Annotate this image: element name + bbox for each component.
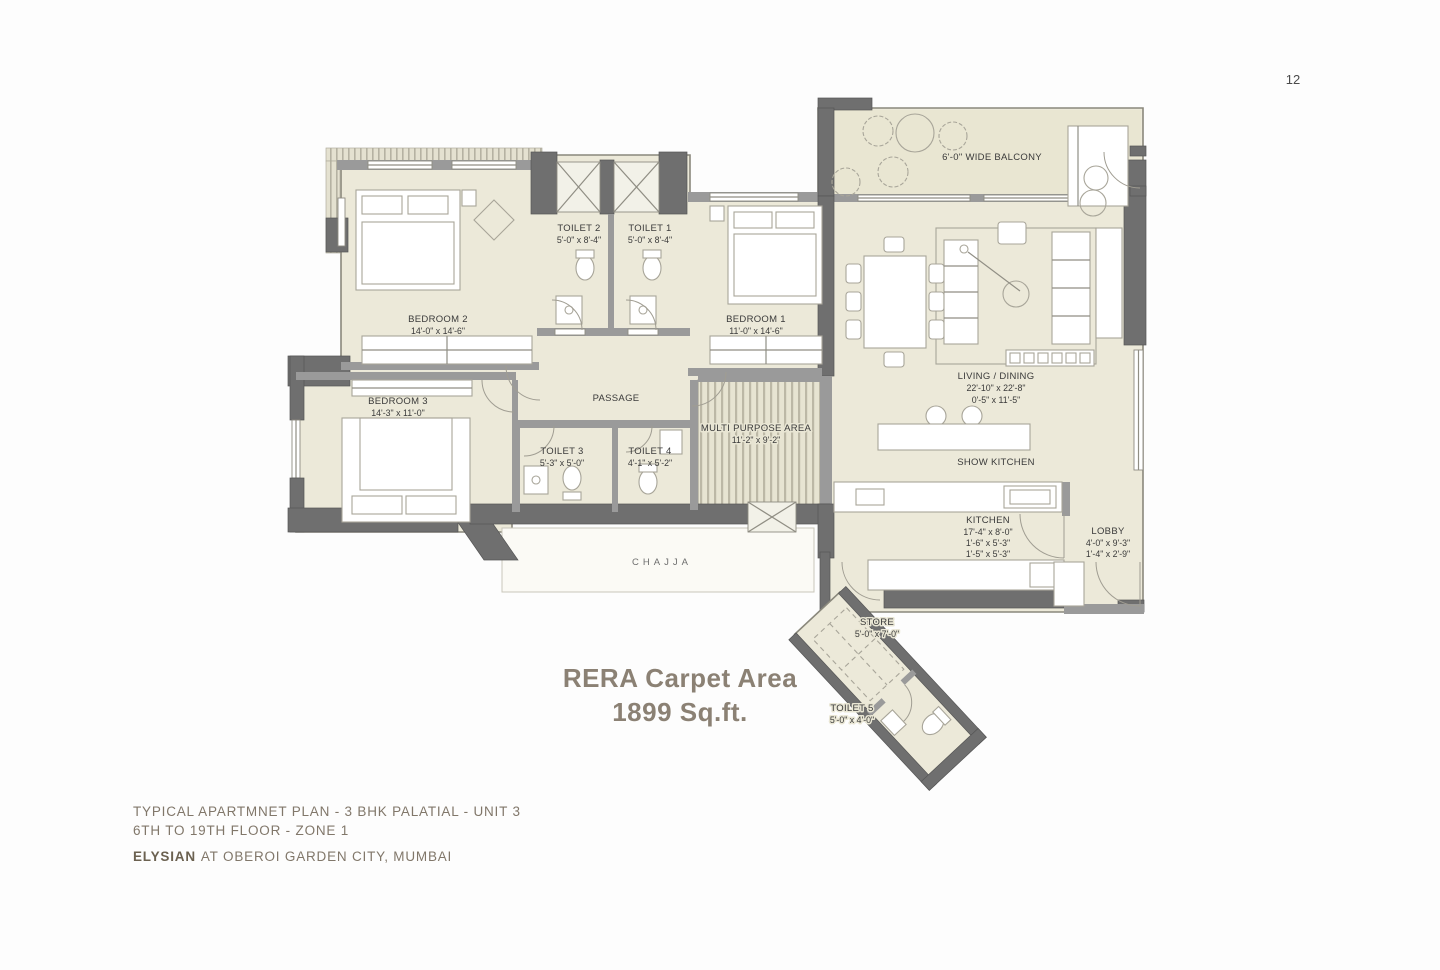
bedroom1-dim: 11'-0" x 14'-6" [729, 326, 782, 336]
show-kitchen-label: SHOW KITCHEN [957, 457, 1035, 468]
kitchen-dim3: 1'-5" x 5'-3" [966, 549, 1010, 559]
floor-plan-drawing: 6'-0" WIDE BALCONY TOILET 2 5'-0" x 8'-4… [0, 0, 1440, 970]
store-dim: 5'-0" x 7'-0" [855, 629, 899, 639]
toilet2-label: TOILET 2 [557, 223, 600, 234]
project-location: AT OBEROI GARDEN CITY, MUMBAI [201, 849, 452, 864]
bedroom3-dim: 14'-3" x 11'-0" [371, 408, 424, 418]
project-brand: ELYSIAN [133, 849, 196, 864]
plan-title-line2: 6TH TO 19TH FLOOR - ZONE 1 [133, 823, 349, 838]
carpet-area-line2: 1899 Sq.ft. [612, 697, 748, 727]
lobby-label: LOBBY [1091, 526, 1125, 537]
title-block: TYPICAL APARTMNET PLAN - 3 BHK PALATIAL … [133, 804, 521, 864]
multi-purpose-dim: 11'-2" x 9'-2" [732, 435, 781, 445]
floor-plan-page: 6'-0" WIDE BALCONY TOILET 2 5'-0" x 8'-4… [0, 0, 1440, 970]
toilet1-label: TOILET 1 [628, 223, 671, 234]
toilet5-dim: 5'-0" x 4'-0" [830, 715, 874, 725]
kitchen-dim2: 1'-6" x 5'-3" [966, 538, 1010, 548]
living-dining-dim2: 0'-5" x 11'-5" [972, 395, 1021, 405]
project-name-line: ELYSIANAT OBEROI GARDEN CITY, MUMBAI [133, 849, 452, 864]
toilet1-dim: 5'-0" x 8'-4" [628, 235, 672, 245]
kitchen-dim1: 17'-4" x 8'-0" [963, 527, 1012, 537]
passage-label: PASSAGE [593, 393, 640, 404]
living-dining-label: LIVING / DINING [958, 371, 1035, 382]
page-number: 12 [1286, 72, 1300, 87]
toilet4-label: TOILET 4 [628, 446, 671, 457]
plan-title-line1: TYPICAL APARTMNET PLAN - 3 BHK PALATIAL … [133, 804, 521, 819]
toilet4-dim: 4'-1" x 5'-2" [628, 458, 672, 468]
toilet3-dim: 5'-3" x 5'-0" [540, 458, 584, 468]
toilet5-label: TOILET 5 [830, 703, 873, 714]
bedroom2-dim: 14'-0" x 14'-6" [411, 326, 465, 336]
bedroom1-label: BEDROOM 1 [726, 314, 786, 325]
store-label: STORE [860, 617, 894, 628]
bedroom2-label: BEDROOM 2 [408, 314, 468, 325]
toilet2-dim: 5'-0" x 8'-4" [557, 235, 601, 245]
kitchen-label: KITCHEN [966, 515, 1010, 526]
living-dining-dim1: 22'-10" x 22'-8" [967, 383, 1026, 393]
multi-purpose-label: MULTI PURPOSE AREA [701, 423, 812, 434]
carpet-area-callout: RERA Carpet Area 1899 Sq.ft. [563, 663, 797, 727]
lobby-dim2: 1'-4" x 2'-9" [1086, 549, 1130, 559]
carpet-area-line1: RERA Carpet Area [563, 663, 797, 693]
chajja-label: CHAJJA [632, 557, 692, 568]
bedroom3-label: BEDROOM 3 [368, 396, 428, 407]
toilet3-label: TOILET 3 [540, 446, 583, 457]
balcony-label: 6'-0" WIDE BALCONY [942, 152, 1042, 163]
lobby-dim1: 4'-0" x 9'-3" [1086, 538, 1130, 548]
